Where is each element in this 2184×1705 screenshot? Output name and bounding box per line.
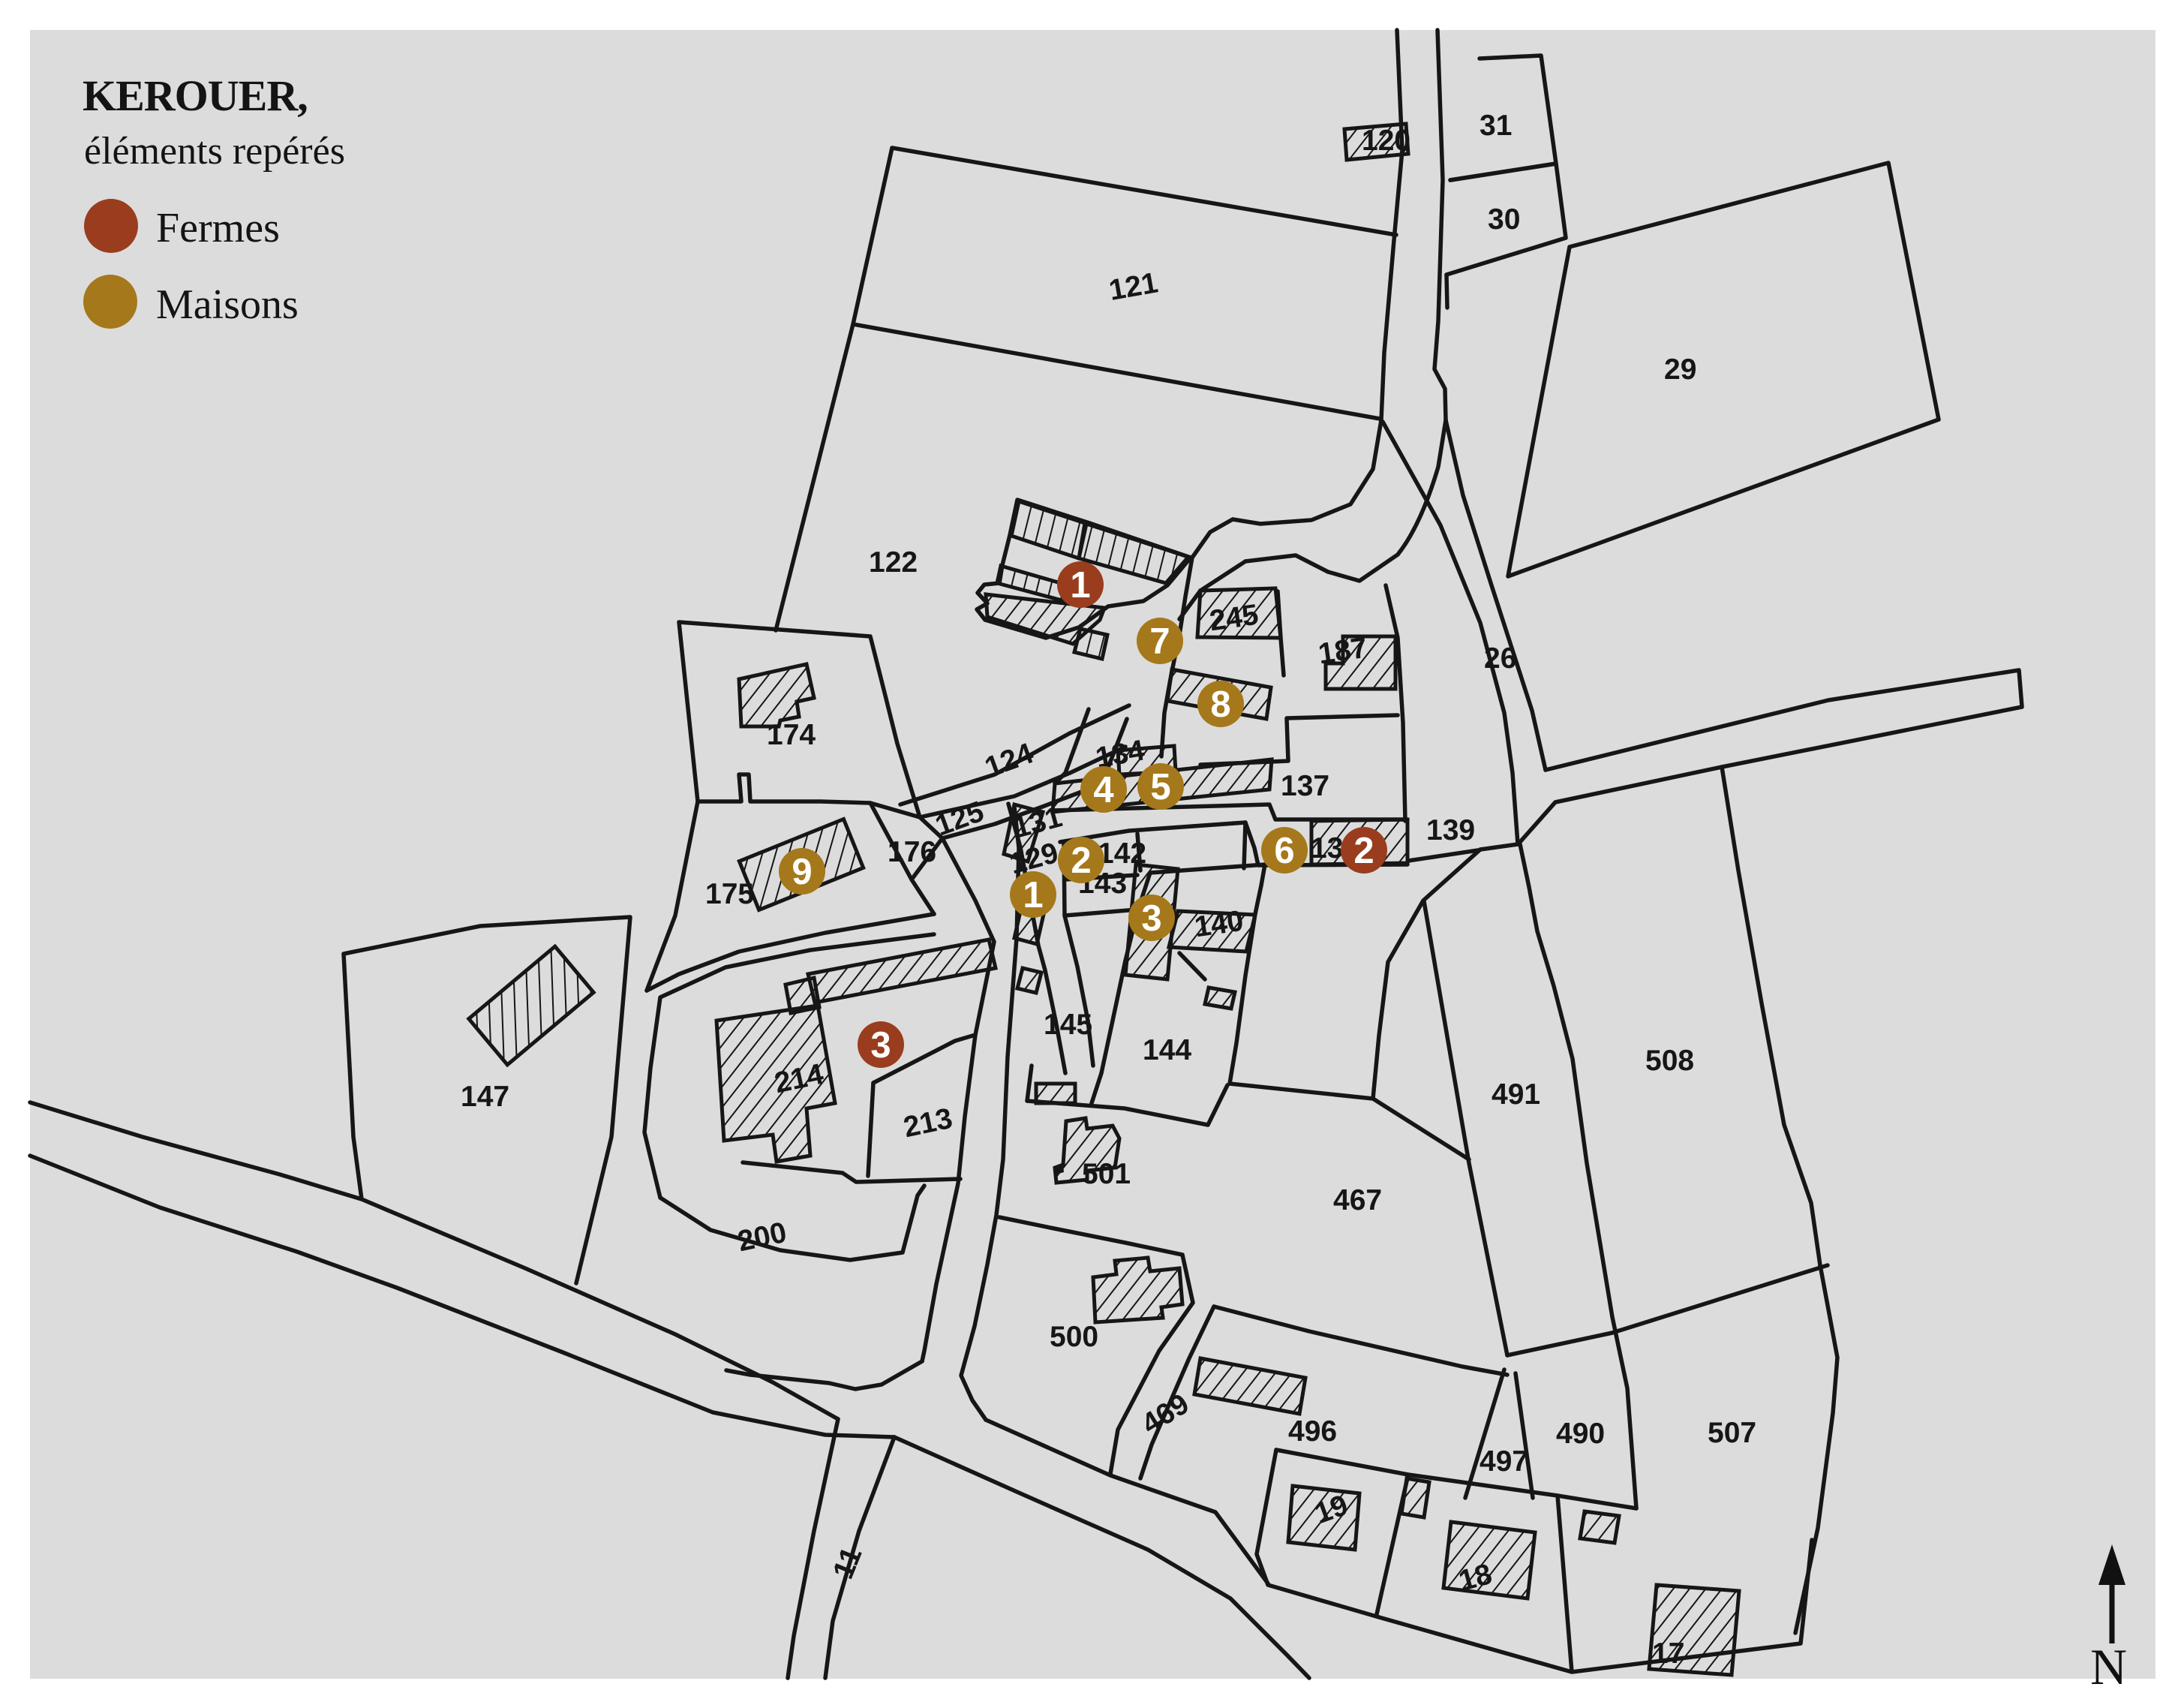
svg-text:1: 1 [1023, 875, 1043, 916]
svg-text:497: 497 [1480, 1445, 1528, 1478]
svg-text:147: 147 [461, 1081, 509, 1113]
svg-text:508: 508 [1645, 1045, 1694, 1077]
svg-text:120: 120 [1362, 125, 1410, 157]
svg-text:1: 1 [1070, 565, 1090, 606]
svg-text:2: 2 [1071, 840, 1091, 881]
svg-text:3: 3 [1141, 898, 1161, 939]
svg-text:9: 9 [792, 852, 812, 892]
svg-text:467: 467 [1333, 1184, 1382, 1216]
svg-text:500: 500 [1050, 1321, 1098, 1353]
svg-text:Maisons: Maisons [156, 281, 299, 328]
svg-text:491: 491 [1492, 1078, 1540, 1111]
svg-text:174: 174 [767, 719, 816, 751]
svg-text:6: 6 [1274, 831, 1294, 871]
svg-text:30: 30 [1488, 203, 1520, 236]
svg-text:144: 144 [1143, 1034, 1191, 1066]
svg-text:17: 17 [1652, 1637, 1684, 1670]
svg-text:N: N [2090, 1638, 2127, 1695]
svg-text:26: 26 [1484, 642, 1516, 675]
svg-text:122: 122 [869, 546, 918, 579]
svg-text:140: 140 [1193, 905, 1245, 944]
svg-text:Fermes: Fermes [156, 205, 280, 251]
svg-text:490: 490 [1556, 1418, 1605, 1450]
svg-text:507: 507 [1708, 1417, 1756, 1449]
svg-text:29: 29 [1664, 353, 1696, 386]
svg-text:142: 142 [1098, 837, 1146, 870]
svg-text:31: 31 [1480, 110, 1512, 142]
svg-text:187: 187 [1317, 632, 1369, 671]
svg-text:245: 245 [1208, 599, 1260, 638]
svg-text:8: 8 [1210, 684, 1230, 725]
svg-text:145: 145 [1044, 1009, 1092, 1041]
svg-text:2: 2 [1353, 831, 1374, 871]
svg-text:KEROUER,: KEROUER, [83, 71, 308, 120]
svg-text:3: 3 [870, 1025, 891, 1066]
svg-text:496: 496 [1288, 1415, 1337, 1448]
svg-text:5: 5 [1150, 767, 1170, 807]
svg-text:7: 7 [1149, 621, 1170, 662]
svg-text:176: 176 [888, 836, 936, 868]
svg-text:137: 137 [1281, 770, 1329, 802]
svg-text:139: 139 [1426, 814, 1475, 846]
svg-text:4: 4 [1093, 770, 1113, 810]
svg-text:175: 175 [705, 878, 754, 910]
svg-text:501: 501 [1082, 1158, 1131, 1190]
svg-text:éléments repérés: éléments repérés [84, 130, 345, 173]
